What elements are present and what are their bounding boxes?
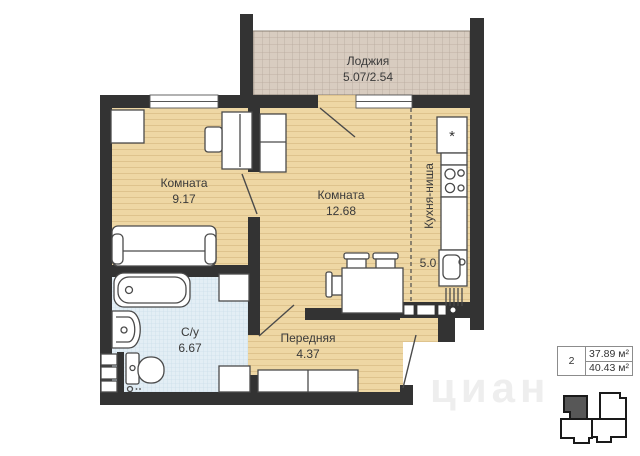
washing-machine — [219, 366, 250, 392]
wardrobe — [111, 110, 144, 143]
room-label-bathroom: С/у 6.67 — [178, 324, 201, 356]
room-label-hallway: Передняя 4.37 — [280, 330, 335, 362]
kitchen-sink — [439, 250, 467, 286]
rooms-count: 2 — [558, 347, 586, 375]
living-area: 37.89 м² — [586, 347, 632, 361]
stove — [441, 165, 467, 197]
sofa — [112, 226, 216, 266]
furniture-hallway — [258, 370, 358, 392]
shaft-box — [101, 381, 117, 392]
room-label-kitchen-area: 5.0 — [420, 255, 437, 271]
room-label-living: Комната 12.68 — [318, 187, 365, 219]
window-loggia — [356, 95, 412, 108]
building-locator — [560, 390, 630, 446]
floor-plan: * Лоджия 5.07/2.54 Комната 9.17 Комната … — [0, 0, 640, 456]
area-info-table: 2 37.89 м² 40.43 м² — [557, 346, 633, 376]
shaft-box — [101, 354, 117, 365]
hall-wardrobe — [258, 370, 358, 392]
window-room-left — [150, 95, 218, 108]
wash-basin — [112, 311, 140, 348]
highlighted-unit — [564, 396, 587, 419]
room-label-kitchen: Кухня-ниша — [421, 163, 437, 229]
watermark: циан — [430, 364, 550, 412]
entrance-door — [403, 335, 416, 388]
chair — [205, 127, 222, 152]
chair — [326, 272, 332, 297]
counter — [441, 197, 467, 250]
desk — [222, 112, 252, 169]
shelf-unit — [260, 114, 286, 172]
washing-machine — [219, 274, 249, 301]
total-area: 40.43 м² — [586, 361, 632, 376]
chair — [344, 253, 369, 259]
room-label-loggia: Лоджия 5.07/2.54 — [343, 53, 393, 85]
fridge-icon: * — [449, 128, 455, 145]
furniture-kitchen — [437, 117, 467, 306]
shaft-box — [101, 367, 117, 379]
room-label-bedroom: Комната 9.17 — [161, 175, 208, 207]
bathtub — [114, 273, 190, 307]
chair — [373, 253, 398, 259]
counter — [441, 153, 467, 165]
